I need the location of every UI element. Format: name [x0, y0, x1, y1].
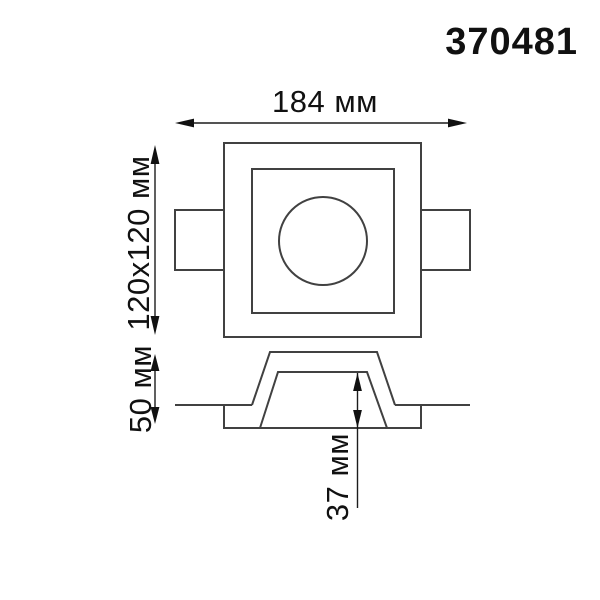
dimension-drawing-svg: 184 мм 120x120 мм 50 мм 37 мм 370481 [0, 0, 600, 600]
recess-depth-label: 37 мм [320, 433, 355, 521]
outer-frame-square [224, 143, 421, 337]
overall-width-label: 184 мм [272, 84, 378, 119]
dim-total-depth: 50 мм [123, 345, 159, 433]
outer-recess-profile [252, 352, 395, 405]
arrow-up-icon [353, 373, 362, 391]
lamp-opening-circle [279, 197, 367, 285]
base-plate-profile [224, 405, 421, 428]
arrow-right-icon [448, 119, 467, 128]
inner-face-square [252, 169, 394, 313]
arrow-down-icon [353, 410, 362, 428]
dim-recess-depth: 37 мм [320, 373, 362, 521]
dim-face-size: 120x120 мм [121, 145, 159, 335]
section-view [175, 352, 470, 428]
dim-overall-width: 184 мм [175, 84, 467, 127]
right-mounting-tab [421, 210, 470, 270]
plan-view [175, 143, 470, 337]
inner-recess-profile [260, 372, 387, 428]
arrow-left-icon [175, 119, 194, 128]
left-mounting-tab [175, 210, 224, 270]
total-depth-label: 50 мм [123, 345, 158, 433]
face-size-label: 120x120 мм [121, 155, 156, 330]
drawing-canvas: 184 мм 120x120 мм 50 мм 37 мм 370481 [0, 0, 600, 600]
article-number: 370481 [445, 21, 578, 63]
